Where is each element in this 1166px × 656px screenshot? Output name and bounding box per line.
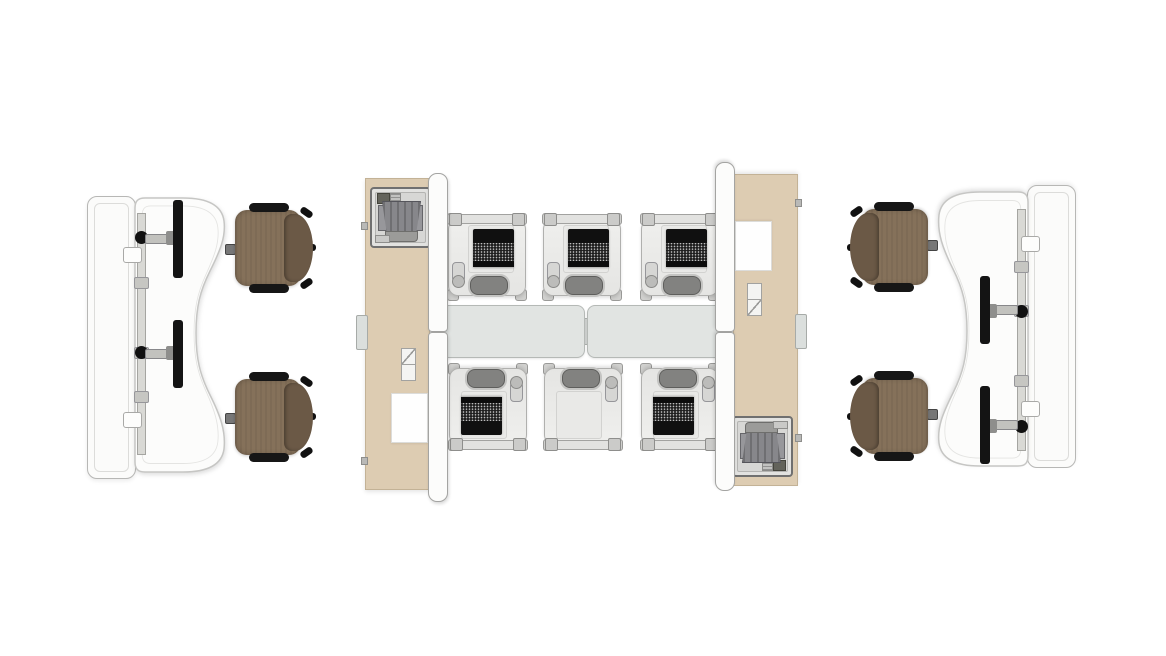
station-tray — [773, 421, 788, 429]
laptop-keyboard — [653, 397, 694, 421]
monitor — [980, 386, 990, 464]
chair-armrest — [249, 284, 289, 293]
rail-clamp — [134, 391, 149, 403]
chair-backrest — [284, 383, 313, 451]
wave-desk-station-left — [85, 195, 315, 480]
station-tray — [375, 235, 390, 243]
edge-connector — [361, 457, 368, 465]
task-chair — [850, 371, 936, 461]
laptop — [473, 229, 514, 267]
laptop — [666, 229, 707, 267]
seat-backrest — [465, 367, 507, 390]
chair-armrest — [874, 202, 914, 211]
bottle — [702, 382, 715, 402]
chair-armrest — [249, 372, 289, 381]
seat-backrest — [560, 367, 602, 390]
chair-backrest — [284, 214, 313, 282]
monitor — [173, 320, 183, 388]
drawer — [747, 283, 762, 300]
laptop-keyboard — [666, 243, 707, 267]
side-bracket — [356, 315, 368, 350]
laptop-screen — [653, 421, 694, 435]
laptop-screen — [473, 229, 514, 243]
floorplan-scene — [0, 0, 1166, 656]
monitor-arm-assembly — [135, 200, 183, 278]
lounge-workstation — [448, 366, 528, 450]
chair-base-knob — [927, 240, 938, 251]
bottle — [547, 262, 560, 282]
unit-rail — [452, 440, 524, 450]
center-table — [441, 305, 585, 358]
drawer-unit — [401, 348, 416, 382]
seat-backrest — [661, 274, 703, 297]
laptop-keyboard — [461, 397, 502, 421]
chair-backrest — [850, 382, 879, 450]
desk-pad — [735, 221, 772, 271]
task-chair — [227, 372, 313, 462]
tucked-chair-station — [370, 187, 431, 248]
chair-armrest — [874, 452, 914, 461]
drawer — [401, 364, 416, 381]
unit-rail — [644, 440, 716, 450]
chair-armrest — [874, 371, 914, 380]
drawer — [747, 299, 762, 316]
seat-backrest — [563, 274, 605, 297]
tucked-chair-backrest — [382, 201, 421, 235]
bottle — [605, 382, 618, 402]
monitor-arm-assembly — [135, 320, 183, 388]
seat-backrest — [657, 367, 699, 390]
bottle — [510, 382, 523, 402]
task-chair — [227, 203, 313, 293]
monitor — [980, 276, 990, 344]
edge-connector — [795, 434, 802, 442]
center-table — [587, 305, 729, 358]
chair-armrest — [874, 283, 914, 292]
laptop — [461, 397, 502, 435]
laptop-keyboard — [473, 243, 514, 267]
unit-rail — [451, 214, 523, 224]
laptop — [568, 229, 609, 267]
bottle — [452, 262, 465, 282]
divider-screen-segment — [428, 332, 448, 502]
divider-screen-segment — [715, 332, 735, 491]
bottle — [645, 262, 658, 282]
divider-screen-segment — [428, 173, 448, 332]
seat-backrest — [468, 274, 510, 297]
laptop-screen — [666, 229, 707, 243]
laptop — [653, 397, 694, 435]
drawer — [401, 348, 416, 365]
lounge-workstation — [447, 214, 527, 298]
storage-run-right — [716, 162, 807, 494]
storage-run-left — [356, 170, 447, 502]
panel-bracket — [1021, 236, 1040, 252]
panel-bracket — [123, 412, 142, 428]
lounge-workstation — [542, 214, 622, 298]
monitor — [173, 200, 183, 278]
privacy-screen — [1027, 185, 1076, 468]
lounge-workstation — [640, 214, 720, 298]
unit-worksurface — [556, 391, 602, 439]
chair-armrest — [249, 203, 289, 212]
lounge-workstation-empty — [543, 366, 623, 450]
tucked-chair-station — [732, 416, 793, 477]
chair-armrest — [249, 453, 289, 462]
laptop-keyboard — [568, 243, 609, 267]
rail-clamp — [134, 277, 149, 289]
tucked-chair-backrest — [742, 429, 781, 463]
laptop-screen — [568, 229, 609, 243]
unit-rail — [547, 440, 619, 450]
task-chair — [850, 202, 936, 292]
lounge-workstation — [640, 366, 720, 450]
rail-clamp — [1014, 261, 1029, 273]
drawer-unit — [747, 282, 762, 316]
edge-connector — [361, 222, 368, 230]
divider-screen-segment — [715, 162, 735, 332]
edge-connector — [795, 199, 802, 207]
desk-pad — [391, 393, 428, 443]
chair-base-knob — [927, 409, 938, 420]
unit-rail — [644, 214, 716, 224]
unit-rail — [546, 214, 618, 224]
monitor-arm-assembly — [980, 276, 1028, 344]
monitor-arm-assembly — [980, 386, 1028, 464]
privacy-screen — [87, 196, 136, 479]
side-bracket — [795, 314, 807, 349]
laptop-screen — [461, 421, 502, 435]
wave-desk-station-right — [848, 184, 1078, 469]
chair-backrest — [850, 213, 879, 281]
